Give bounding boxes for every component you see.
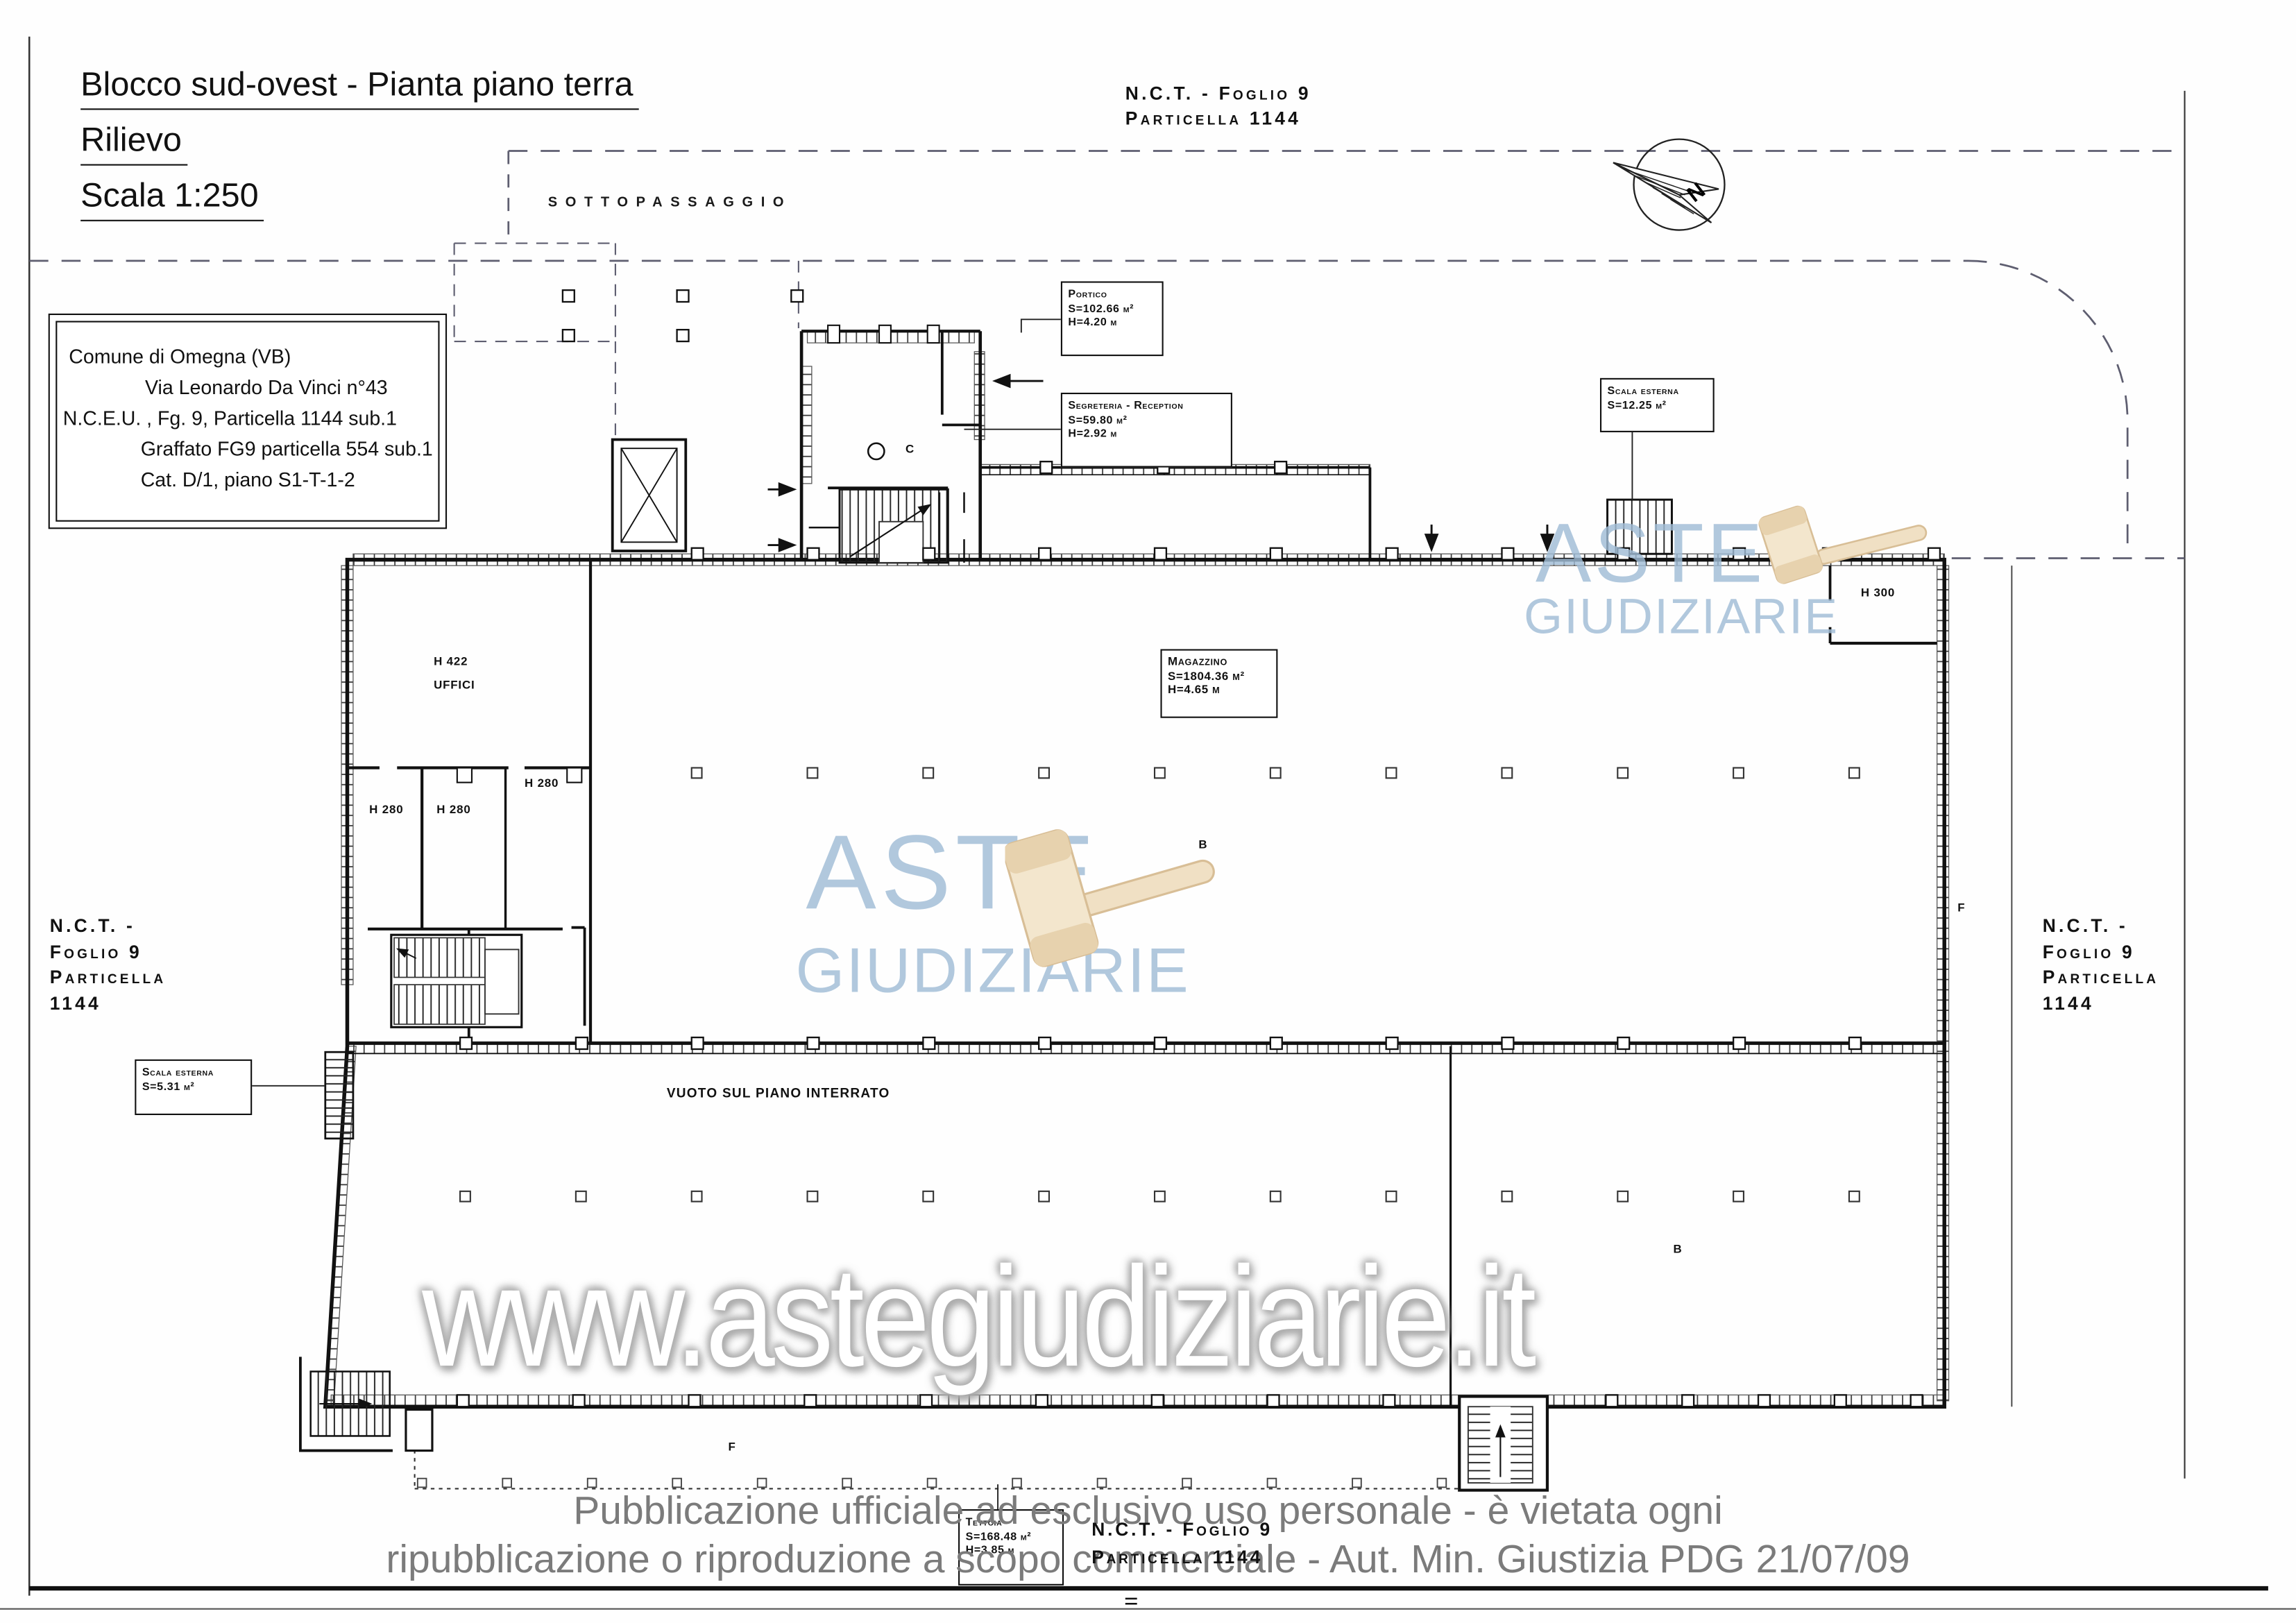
tettoia-outline	[415, 1409, 1465, 1488]
elevator-shaft	[613, 440, 686, 551]
info-nceu: N.C.E.U. , Fg. 9, Particella 1144 sub.1	[57, 403, 438, 434]
zone-f-tettoia: F	[729, 1441, 736, 1454]
north-compass-icon: N	[1613, 139, 1724, 230]
scala-sx-area: S=5.31 m²	[142, 1079, 248, 1093]
segreteria-area: S=59.80 m²	[1068, 413, 1227, 427]
info-categoria: Cat. D/1, piano S1-T-1-2	[57, 464, 438, 495]
cadastral-right-line4: 1144	[2043, 992, 2159, 1017]
cadastral-ref-top: N.C.T. - Foglio 9 Particella 1144	[1125, 82, 1311, 132]
zone-f-right: F	[1957, 901, 1965, 915]
floor-plan-page: N ASTE GIUDIZIARIE ASTE GIUDIZIARIE www.…	[0, 0, 2296, 1623]
cadastral-left-line2: Foglio 9	[50, 940, 167, 966]
cadastral-right-line2: Foglio 9	[2043, 940, 2159, 966]
cadastral-ref-top-line1: N.C.T. - Foglio 9	[1125, 82, 1311, 107]
zone-c-reception: C	[905, 443, 915, 456]
cadastral-ref-right: N.C.T. - Foglio 9 Particella 1144	[2043, 915, 2159, 1017]
zone-b-magazzino: B	[1198, 838, 1207, 851]
drawing-subtitle: Rilievo	[80, 120, 187, 165]
gavel-icon	[1753, 501, 1936, 592]
external-stair-bottom-right	[1459, 1396, 1547, 1490]
zone-b-interrato: B	[1674, 1243, 1683, 1256]
cadastral-right-line1: N.C.T. -	[2043, 915, 2159, 940]
sottopassaggio-label: SOTTOPASSAGGIO	[548, 195, 792, 211]
portico-title: Portico	[1068, 287, 1159, 301]
room-vuoto-interrato: VUOTO SUL PIANO INTERRATO	[667, 1086, 890, 1101]
cadastral-left-line4: 1144	[50, 992, 167, 1017]
info-comune: Comune di Omegna (VB)	[57, 341, 438, 372]
drawing-scale: Scala 1:250	[80, 176, 264, 221]
pilaster-block	[406, 1409, 432, 1450]
watermark-url: www.astegiudiziarie.it	[422, 1235, 1533, 1400]
drawing-sheet: N ASTE GIUDIZIARIE ASTE GIUDIZIARIE www.…	[0, 0, 2296, 1623]
room-uffici: UFFICI	[434, 679, 475, 692]
cadastral-bottom-line2: Particella 1144	[1091, 1545, 1273, 1572]
annotation-scala-esterna-destra: Scala esterna S=12.25 m²	[1600, 378, 1715, 432]
info-graffato: Graffato FG9 particella 554 sub.1	[57, 434, 438, 464]
internal-double-stair	[391, 935, 522, 1027]
gavel-icon	[1005, 815, 1225, 994]
magazzino-area: S=1804.36 m²	[1168, 669, 1273, 683]
annotation-segreteria: Segreteria - Reception S=59.80 m² H=2.92…	[1061, 393, 1232, 468]
cadastral-left-line3: Particella	[50, 966, 167, 992]
annotation-portico: Portico S=102.66 m² H=4.20 m	[1061, 281, 1164, 356]
property-info-box: Comune di Omegna (VB) Via Leonardo Da Vi…	[49, 314, 447, 529]
portico-area: S=102.66 m²	[1068, 301, 1159, 315]
magazzino-height: H=4.65 m	[1168, 683, 1273, 697]
drawing-title: Blocco sud-ovest - Pianta piano terra	[80, 65, 639, 110]
room-uffici-height: H 422	[434, 655, 468, 668]
external-stair-bottom-left	[300, 1357, 393, 1450]
cadastral-bottom-line1: N.C.T. - Foglio 9	[1091, 1517, 1273, 1545]
cadastral-ref-bottom: N.C.T. - Foglio 9 Particella 1144	[1091, 1517, 1273, 1572]
watermark-aste-top: ASTE	[1536, 513, 1765, 596]
cadastral-left-line1: N.C.T. -	[50, 915, 167, 940]
portico-height: H=4.20 m	[1068, 315, 1159, 329]
cadastral-ref-top-line2: Particella 1144	[1125, 107, 1311, 132]
magazzino-title: Magazzino	[1168, 655, 1273, 669]
room-h280-b: H 280	[436, 803, 470, 816]
external-stair-left	[325, 1052, 353, 1139]
annotation-scala-esterna-sinistra: Scala esterna S=5.31 m²	[135, 1060, 252, 1115]
cadastral-ref-left: N.C.T. - Foglio 9 Particella 1144	[50, 915, 167, 1017]
annotation-magazzino: Magazzino S=1804.36 m² H=4.65 m	[1160, 649, 1277, 717]
scala-dx-title: Scala esterna	[1608, 384, 1710, 398]
scala-sx-title: Scala esterna	[142, 1065, 248, 1079]
info-indirizzo: Via Leonardo Da Vinci n°43	[57, 372, 438, 402]
segreteria-height: H=2.92 m	[1068, 427, 1227, 441]
round-column	[868, 443, 884, 459]
scala-dx-area: S=12.25 m²	[1608, 398, 1710, 412]
room-h280-c: H 280	[525, 776, 559, 790]
room-h300: H 300	[1861, 586, 1895, 600]
segreteria-title: Segreteria - Reception	[1068, 398, 1227, 412]
watermark-giudiziarie-top: GIUDIZIARIE	[1524, 592, 1839, 642]
cadastral-right-line3: Particella	[2043, 966, 2159, 992]
room-h280-a: H 280	[369, 803, 403, 816]
